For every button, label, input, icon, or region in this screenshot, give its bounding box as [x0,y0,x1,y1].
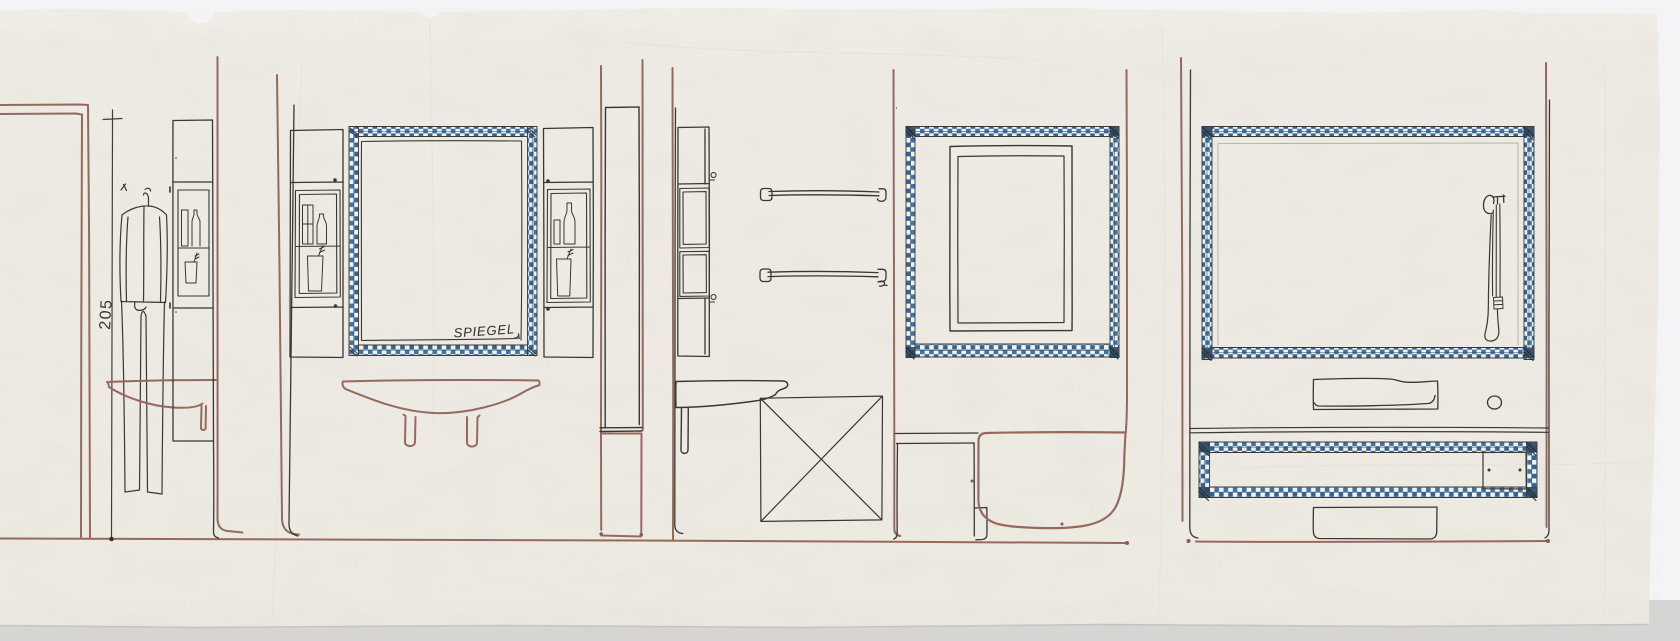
svg-text:205: 205 [97,298,116,330]
